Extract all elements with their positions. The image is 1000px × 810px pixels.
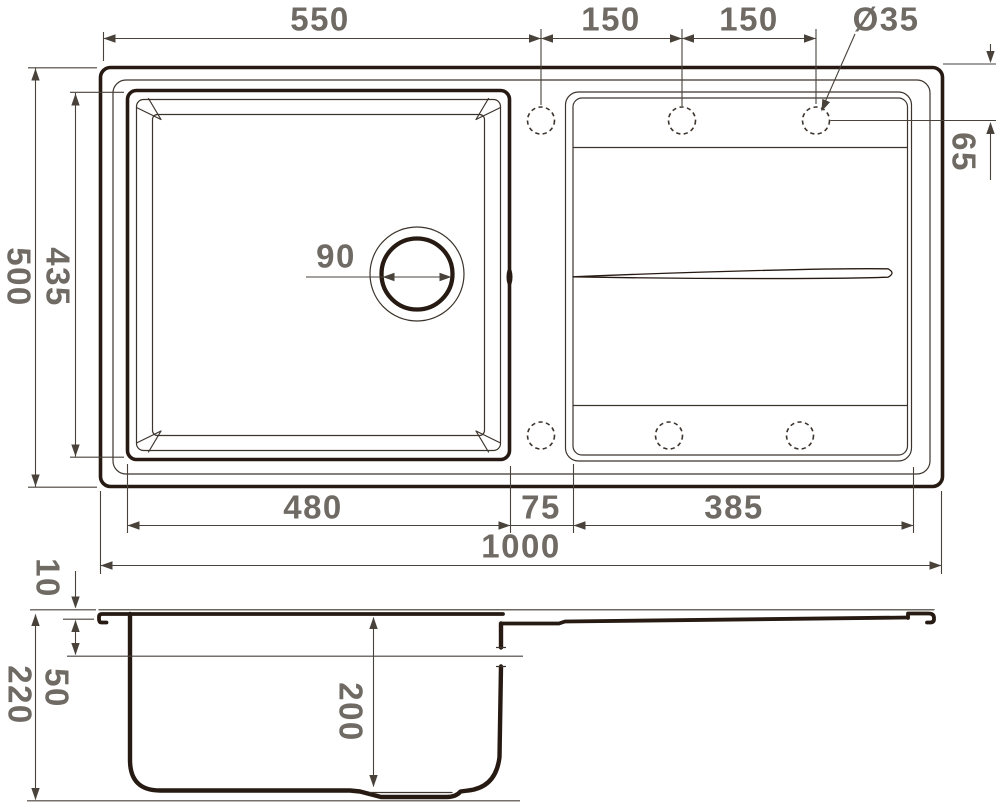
arrowhead xyxy=(682,34,694,42)
dim-ledge-50: 50 xyxy=(38,620,79,708)
arrowhead xyxy=(986,51,994,63)
arrowhead xyxy=(902,521,914,529)
arrowhead xyxy=(128,521,140,529)
arrowhead xyxy=(71,94,79,106)
dim-label-65: 65 xyxy=(945,132,982,172)
dim-height-220: 220 xyxy=(1,614,39,800)
dim-rim-10: 10 xyxy=(29,558,96,619)
arrowhead xyxy=(71,597,79,609)
section-overflow-opening xyxy=(497,648,506,667)
dim-label-75: 75 xyxy=(521,489,561,526)
dim-label-550: 550 xyxy=(290,1,350,38)
dim-label-150-b: 150 xyxy=(719,1,779,38)
dim-label-90: 90 xyxy=(316,238,356,275)
dim-label-10: 10 xyxy=(29,558,66,598)
dim-extension-lines xyxy=(30,610,96,619)
arrowhead xyxy=(529,34,541,42)
dim-label-200: 200 xyxy=(332,682,369,742)
plan-view: 550 150 150 Ø35 65 500 435 xyxy=(0,1,996,574)
overflow-hole xyxy=(507,268,513,286)
dim-label-220: 220 xyxy=(1,665,38,725)
arrowhead xyxy=(31,788,39,800)
arrowhead xyxy=(541,34,553,42)
section-top-rim-left xyxy=(99,614,503,623)
arrowhead xyxy=(986,122,994,134)
arrowhead xyxy=(369,775,377,787)
dim-label-50: 50 xyxy=(38,668,75,708)
section-top-rim-right xyxy=(908,614,934,623)
arrowhead xyxy=(101,561,113,569)
section-drainboard-surface xyxy=(501,618,908,624)
drainboard xyxy=(566,92,912,461)
arrowhead xyxy=(31,475,39,487)
dim-label-500: 500 xyxy=(0,247,37,307)
arrowhead xyxy=(369,617,377,629)
arrowhead xyxy=(104,34,116,42)
dim-label-d35: Ø35 xyxy=(853,1,920,38)
dim-label-385: 385 xyxy=(704,489,764,526)
arrowhead xyxy=(71,620,79,632)
arrowhead xyxy=(574,521,586,529)
dim-bowl-depth-200: 200 xyxy=(332,617,377,787)
dim-label-435: 435 xyxy=(39,247,76,307)
sink-drawing-canvas: 550 150 150 Ø35 65 500 435 xyxy=(0,0,1000,810)
arrowhead xyxy=(31,69,39,81)
arrowhead xyxy=(804,34,816,42)
bowl xyxy=(128,91,513,460)
dim-label-150-a: 150 xyxy=(581,1,641,38)
dim-label-1000: 1000 xyxy=(481,528,560,565)
arrowhead xyxy=(670,34,682,42)
arrowhead xyxy=(930,561,942,569)
arrowhead xyxy=(71,643,79,655)
section-bowl-profile xyxy=(130,614,501,797)
section-view: 10 50 220 200 xyxy=(1,558,934,801)
arrowhead xyxy=(71,445,79,457)
dim-label-480: 480 xyxy=(283,489,343,526)
arrowhead xyxy=(31,614,39,626)
technical-drawing-page: 550 150 150 Ø35 65 500 435 xyxy=(0,0,1000,810)
